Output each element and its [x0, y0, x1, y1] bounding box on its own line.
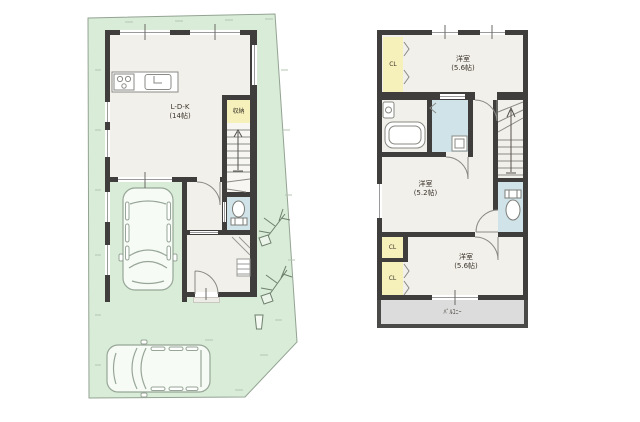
tree-icon: [255, 209, 292, 329]
room-label: 洋室 (5.2帖): [388, 180, 463, 198]
room-size: (5.6帖): [423, 64, 503, 73]
washing-machine-icon: [452, 136, 467, 151]
entrance-step-icon: [232, 237, 250, 276]
sink-icon: [145, 75, 171, 90]
washbasin-icon: [383, 102, 394, 118]
stairs-icon: [498, 102, 523, 175]
door-arc-icon: [195, 182, 220, 294]
closet-label: CL: [382, 244, 403, 252]
ldk-size-label: (14帖): [140, 112, 220, 121]
toilet-icon: [505, 190, 521, 220]
room-size: (5.2帖): [388, 189, 463, 198]
room-name: 洋室: [426, 253, 506, 262]
room-name: 洋室: [423, 55, 503, 64]
stairs-icon: [227, 130, 250, 192]
floor1-plan: L-D-K (14帖) 収納: [85, 10, 300, 405]
car-icon: [107, 340, 210, 397]
bathtub-icon: [385, 122, 425, 148]
garden-pot-icon: [255, 315, 263, 329]
room-name: 洋室: [388, 180, 463, 189]
floorplan-image: L-D-K (14帖) 収納 ﾊﾞﾙｺﾆｰ: [0, 0, 640, 422]
storage-label: 収納: [227, 108, 250, 116]
car-icon: [119, 188, 177, 290]
room-label: 洋室 (5.6帖): [426, 253, 506, 271]
room-label: 洋室 (5.6帖): [423, 55, 503, 73]
bath-door-icon: [430, 103, 436, 113]
room-label: L-D-K (14帖): [140, 103, 220, 121]
room-size: (5.6帖): [426, 262, 506, 271]
floor1-fixtures: [85, 10, 300, 405]
toilet-icon: [231, 201, 247, 225]
closet-label: CL: [382, 275, 403, 283]
stove-icon: [114, 74, 134, 90]
closet-label: CL: [383, 61, 403, 69]
floor2-plan: ﾊﾞﾙｺﾆｰ: [368, 22, 536, 322]
kitchen-counter-icon: [112, 72, 178, 92]
ldk-label: L-D-K: [140, 103, 220, 112]
